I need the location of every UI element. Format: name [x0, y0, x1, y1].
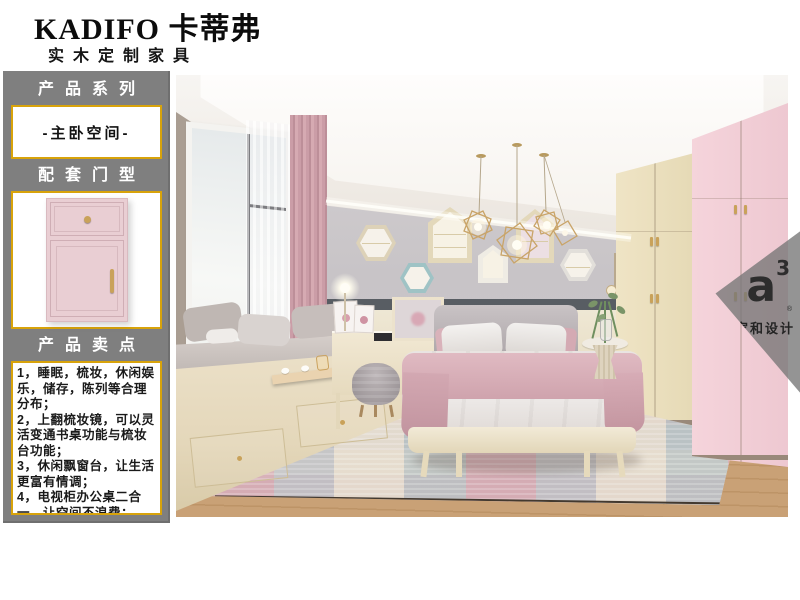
- selling-point: 2，上翻梳妆镜，可以灵活变通书桌功能与梳妆台功能；: [17, 413, 156, 460]
- selling-point: 1，睡眠，梳妆，休闲娱乐，储存，陈列等合理分布；: [17, 366, 156, 413]
- section-title-door: 配套门型: [3, 165, 170, 187]
- catalog-page: KADIFO 卡蒂弗 实木定制家具 产品系列 -主卧空间- 配套门型 产品卖点 …: [0, 0, 800, 600]
- blanket-drape: [603, 372, 645, 433]
- art-print: [354, 305, 375, 334]
- door-preview-box: [11, 191, 162, 329]
- drawer-front: [50, 202, 124, 236]
- registered-mark: ®: [787, 306, 792, 313]
- desk-lamp: [340, 283, 350, 293]
- drawer-knob: [84, 216, 91, 223]
- series-box: -主卧空间-: [11, 105, 162, 159]
- plant-vase: [600, 319, 612, 341]
- door-panel-line: [56, 246, 118, 311]
- door-handle: [110, 269, 114, 293]
- seat-pillow: [237, 313, 291, 347]
- section-title-series: 产品系列: [3, 79, 170, 101]
- pouf-stool: [352, 363, 400, 405]
- cabinet-door-graphic: [46, 198, 128, 322]
- seat-drawer: [190, 428, 289, 488]
- desk-leg: [336, 393, 340, 429]
- series-label: -主卧空间-: [43, 122, 131, 143]
- bed-leg: [584, 451, 590, 477]
- door-panel: [50, 240, 124, 317]
- brand-tagline: 实木定制家具: [48, 42, 198, 66]
- pouf-leg: [374, 405, 377, 417]
- section-title-selling: 产品卖点: [3, 335, 170, 357]
- bed-frame: [408, 427, 636, 453]
- selling-point: 4，电视柜办公桌二合一，让空间不浪费；: [17, 490, 156, 515]
- bedroom-photo: [176, 75, 788, 517]
- selling-point: 3，休闲飘窗台，让生活更富有情调；: [17, 459, 156, 490]
- seat-pillow: [206, 328, 239, 344]
- sidebar: 产品系列 -主卧空间- 配套门型 产品卖点 1，睡眠，梳妆，休闲娱乐，储存，陈列…: [3, 71, 170, 523]
- wall-lamp: [614, 253, 616, 289]
- selling-points-box: 1，睡眠，梳妆，休闲娱乐，储存，陈列等合理分布； 2，上翻梳妆镜，可以灵活变通书…: [11, 361, 162, 515]
- desk-lamp-stand: [344, 293, 346, 331]
- bed-leg: [456, 451, 462, 477]
